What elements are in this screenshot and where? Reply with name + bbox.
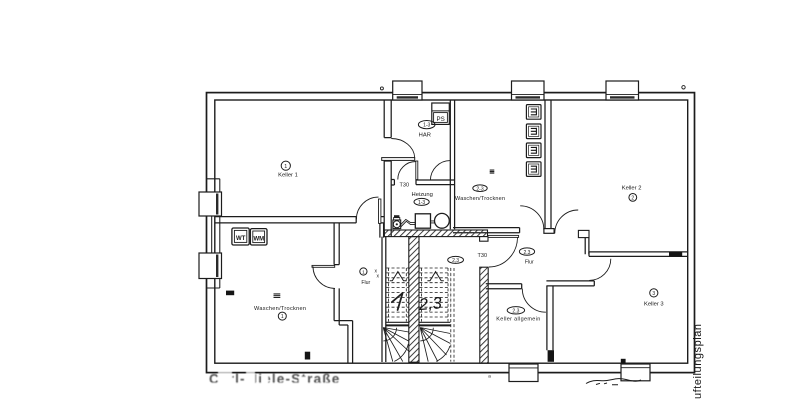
svg-text:Flur: Flur <box>361 280 370 286</box>
svg-text:PS: PS <box>436 116 444 123</box>
svg-text:2,3: 2,3 <box>512 308 519 314</box>
svg-text:a: a <box>488 374 491 379</box>
svg-text:ufteilungsplan: ufteilungsplan <box>692 323 704 399</box>
svg-text:Waschen/Trocknen: Waschen/Trocknen <box>254 306 306 312</box>
svg-text:2,3: 2,3 <box>417 294 443 314</box>
svg-text:1: 1 <box>284 164 287 170</box>
svg-text:WT: WT <box>236 236 246 242</box>
svg-text:1: 1 <box>362 270 365 276</box>
svg-text:Keller 1: Keller 1 <box>278 172 298 178</box>
svg-text:Flur: Flur <box>525 260 534 266</box>
svg-text:WM: WM <box>253 236 264 242</box>
svg-text:3: 3 <box>652 291 655 297</box>
svg-text:T30: T30 <box>400 183 409 189</box>
svg-text:1: 1 <box>281 314 284 320</box>
svg-text:Keller 3: Keller 3 <box>644 301 664 307</box>
svg-text:HAR: HAR <box>419 133 431 139</box>
svg-text:Heizung: Heizung <box>412 192 433 198</box>
svg-text:Keller allgemein: Keller allgemein <box>496 317 540 323</box>
svg-text:2: 2 <box>631 196 634 202</box>
svg-text:1-3: 1-3 <box>418 200 425 206</box>
svg-text:2,3: 2,3 <box>452 258 459 264</box>
svg-text:Waschen/Trocknen: Waschen/Trocknen <box>455 196 505 202</box>
svg-text:T30: T30 <box>478 253 487 259</box>
svg-text:2-3: 2-3 <box>476 186 483 192</box>
svg-text:Keller 2: Keller 2 <box>622 186 642 192</box>
svg-text:1-3: 1-3 <box>423 123 430 129</box>
svg-text:2,3: 2,3 <box>524 250 531 256</box>
